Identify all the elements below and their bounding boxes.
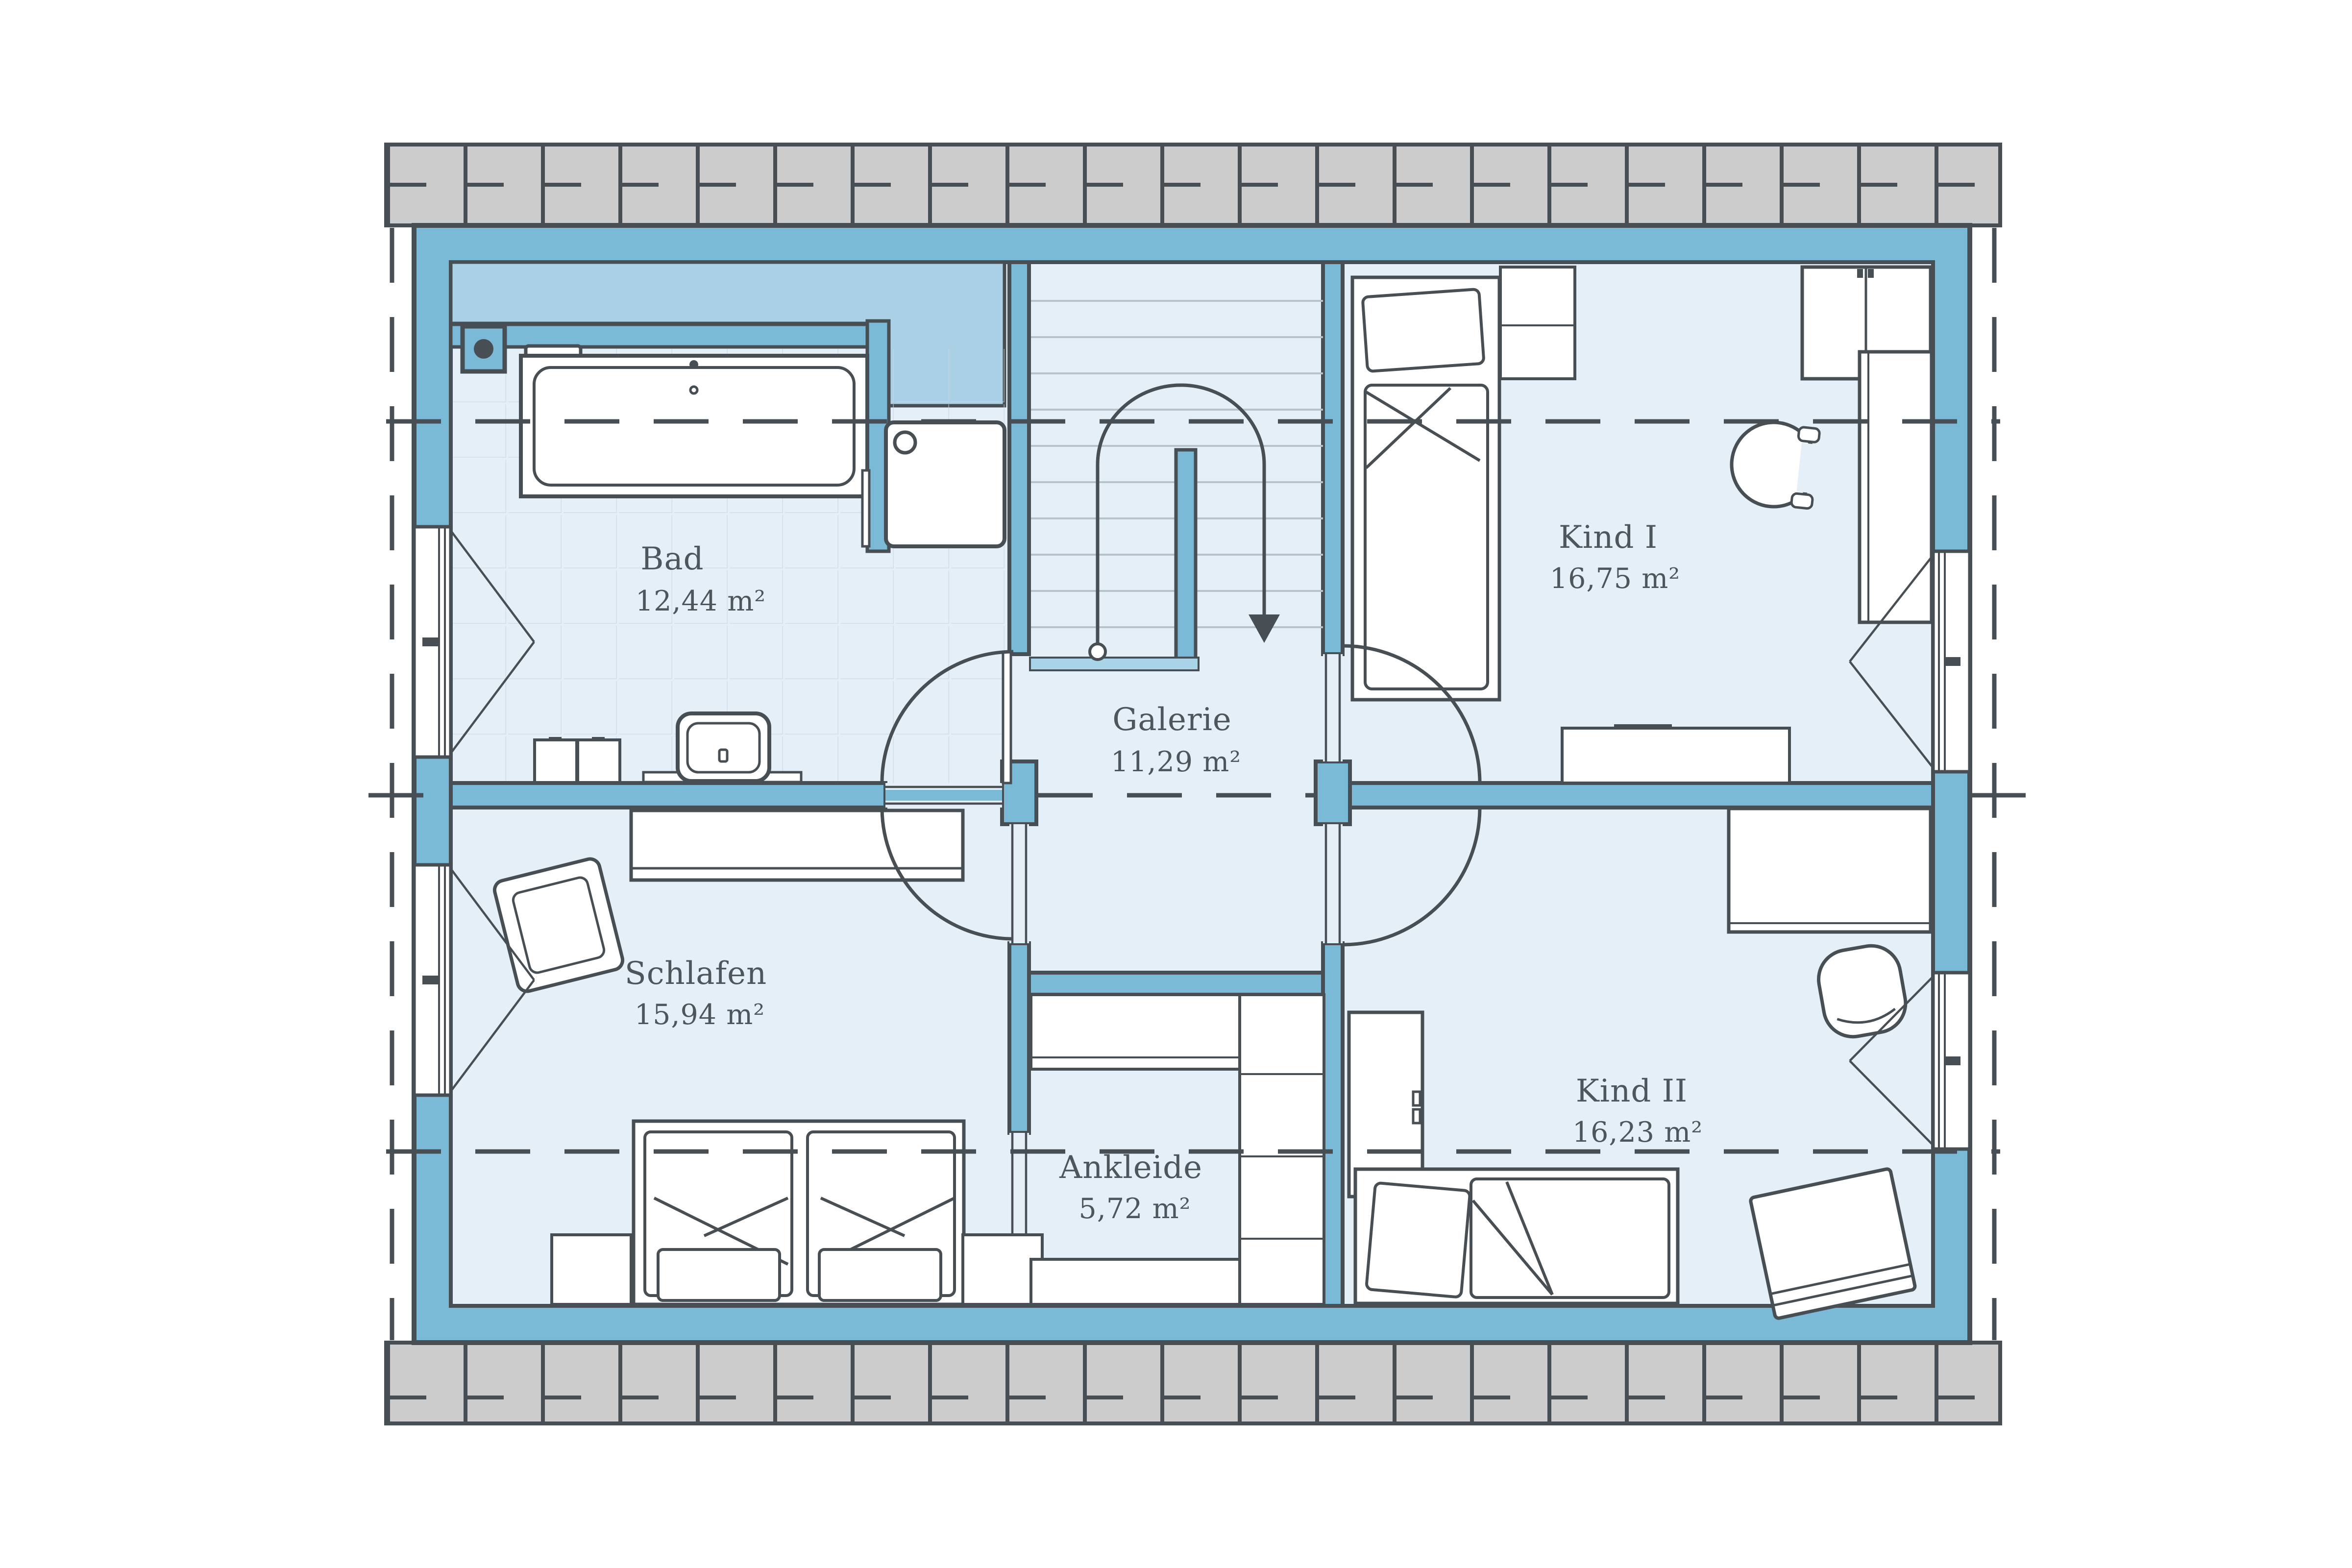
label-kind2-area: 16,23 m² xyxy=(1572,1116,1703,1149)
room-bad xyxy=(451,262,1004,783)
galerie-west-wall xyxy=(1009,943,1029,1133)
label-bad-area: 12,44 m² xyxy=(636,585,766,617)
label-galerie-name: Galerie xyxy=(1112,702,1232,738)
label-galerie-area: 11,29 m² xyxy=(1111,746,1241,778)
sideboard-south xyxy=(1562,724,1789,783)
shelf xyxy=(1500,267,1575,379)
mid-wall-west xyxy=(451,783,885,808)
bad-knee-wall xyxy=(451,324,867,347)
floor-plan-svg: Bad 12,44 m² Galerie 11,29 m² Kind I 16,… xyxy=(0,0,2352,1568)
wall-cap-east xyxy=(1316,761,1350,824)
sideboard xyxy=(631,810,963,880)
stairwell-west-wall xyxy=(1009,262,1029,654)
stairwell-east-wall xyxy=(1323,262,1343,654)
bad-door-leaf xyxy=(1003,652,1011,783)
label-kind1-name: Kind I xyxy=(1559,519,1658,556)
ankleide-north-wall xyxy=(1029,973,1323,995)
installation-block-icon xyxy=(463,326,505,371)
wardrobe-north xyxy=(1031,995,1240,1069)
desk xyxy=(1860,352,1932,622)
single-bed xyxy=(1355,1169,1678,1303)
label-schlafen-area: 15,94 m² xyxy=(635,999,765,1031)
label-ankleide-area: 5,72 m² xyxy=(1079,1193,1191,1225)
single-bed xyxy=(1352,277,1499,700)
nightstand-left xyxy=(552,1235,631,1304)
bathtub xyxy=(521,356,867,496)
schlafen-door-opening xyxy=(1009,824,1029,943)
roof-hatch-band-top xyxy=(386,145,2000,225)
bath-cabinets xyxy=(535,737,620,783)
kind2-door-opening xyxy=(1323,824,1343,943)
label-ankleide-name: Ankleide xyxy=(1059,1150,1202,1186)
ankleide-east-wall xyxy=(1323,943,1343,1306)
shower-glass-door xyxy=(862,470,869,546)
double-bed xyxy=(634,1121,964,1304)
stair-landing-edge xyxy=(1030,658,1199,670)
label-schlafen-name: Schlafen xyxy=(625,955,767,992)
desk-chair xyxy=(1814,941,1910,1041)
label-kind1-area: 16,75 m² xyxy=(1550,563,1680,595)
roof-hatch-band-bottom xyxy=(386,1343,2000,1423)
wardrobe-south xyxy=(1031,1259,1240,1304)
label-kind2-name: Kind II xyxy=(1576,1073,1688,1109)
stair-spine-wall xyxy=(1176,450,1196,660)
desk xyxy=(1729,808,1931,932)
kind1-door-opening xyxy=(1323,654,1343,761)
mid-wall-east xyxy=(1350,783,1933,808)
label-bad-name: Bad xyxy=(640,541,704,577)
